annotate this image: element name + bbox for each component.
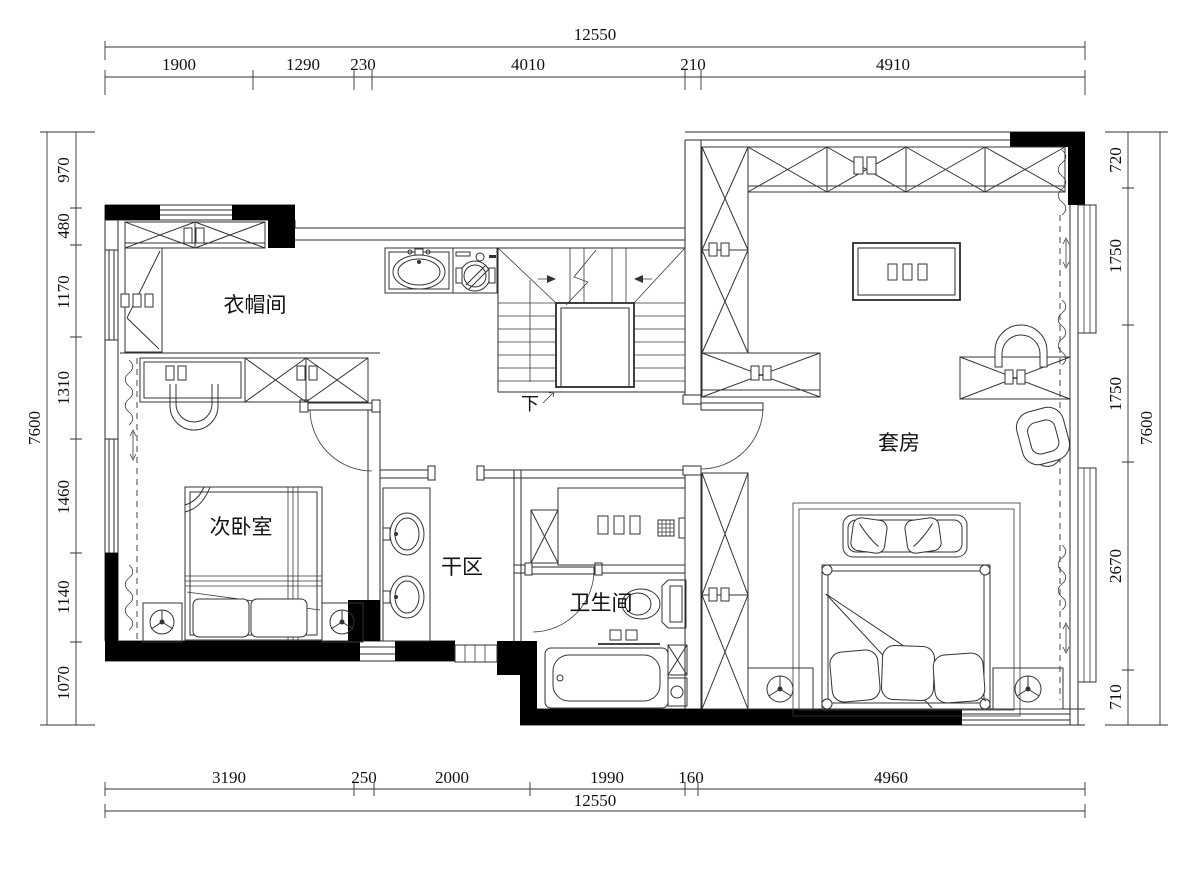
- stairs-down-label: 下: [521, 394, 539, 414]
- dim-bottom-seg-1: 250: [351, 768, 377, 787]
- suite-nightstand-left: [748, 668, 813, 709]
- dim-right-seg-0: 720: [1106, 147, 1125, 173]
- room-label-second-bedroom: 次卧室: [210, 516, 273, 539]
- bathtub: [545, 648, 668, 708]
- room-label-cloakroom: 衣帽间: [224, 294, 287, 317]
- staircase: 下: [498, 248, 685, 414]
- vanity-double-sinks: [383, 488, 430, 641]
- suite-bed: [822, 565, 990, 709]
- suite-dresser-west: [702, 353, 820, 397]
- bedroom-bed: [185, 487, 322, 640]
- door-suite: [683, 395, 763, 475]
- dim-left-seg-1: 480: [54, 213, 73, 239]
- dim-left-seg-2: 1170: [54, 275, 73, 308]
- room-label-dry-area: 干区: [441, 556, 483, 579]
- dim-left-seg-3: 1310: [54, 371, 73, 405]
- dim-right-total: 7600: [1137, 411, 1156, 445]
- bath-accessories: [598, 630, 687, 706]
- suite-desk: [960, 325, 1070, 399]
- room-label-bathroom: 卫生间: [570, 592, 633, 615]
- dim-top-total: 12550: [574, 25, 617, 44]
- bedroom-wardrobe: [245, 358, 368, 402]
- bay-windows-right: [1078, 205, 1096, 682]
- suite-wardrobe-top: [748, 147, 1065, 192]
- hall-sink-cabinet: [385, 248, 453, 293]
- suite-bench: [843, 515, 967, 557]
- walls: [105, 132, 1085, 725]
- dim-bottom-seg-0: 3190: [212, 768, 246, 787]
- dim-left-total: 7600: [25, 411, 44, 445]
- dim-left-seg-0: 970: [54, 157, 73, 183]
- dim-right-seg-1: 1750: [1106, 239, 1125, 273]
- suite-chair: [1013, 404, 1074, 472]
- room-label-suite: 套房: [878, 432, 920, 455]
- dim-top-seg-3: 4010: [511, 55, 545, 74]
- dim-top-seg-2: 230: [350, 55, 376, 74]
- dim-bottom-total: 12550: [574, 791, 617, 810]
- dim-left-seg-5: 1140: [54, 580, 73, 613]
- opening-dry-area: [428, 466, 484, 480]
- washing-machine: [453, 248, 497, 293]
- dim-right-seg-4: 710: [1106, 684, 1125, 710]
- cloakroom-closet: [121, 248, 162, 352]
- dimension-bottom: 3190 250 2000 1990 160 4960 12550: [105, 768, 1085, 818]
- dim-top-seg-0: 1900: [162, 55, 196, 74]
- dimension-left: 970 480 1170 1310 1460 1140 1070 7600: [25, 132, 95, 725]
- dim-top-seg-4: 210: [680, 55, 706, 74]
- suite-island: [853, 243, 960, 300]
- shower-area: [558, 488, 685, 565]
- suite-nightstand-right: [993, 668, 1063, 709]
- dim-bottom-seg-4: 160: [678, 768, 704, 787]
- dim-right-seg-2: 1750: [1106, 377, 1125, 411]
- floor-plan-drawing: 12550 1900 1290 230 4010 210 4910 3190 2…: [0, 0, 1200, 874]
- dressing-table: [140, 358, 245, 430]
- dim-right-seg-3: 2670: [1106, 549, 1125, 583]
- dim-top-seg-1: 1290: [286, 55, 320, 74]
- dim-bottom-seg-2: 2000: [435, 768, 469, 787]
- dim-left-seg-6: 1070: [54, 666, 73, 700]
- threshold-strips: [455, 645, 497, 662]
- suite-wardrobe-left: [702, 147, 748, 353]
- dim-bottom-seg-3: 1990: [590, 768, 624, 787]
- bedroom-nightstand-left: [143, 603, 182, 642]
- dim-top-seg-5: 4910: [876, 55, 910, 74]
- dimension-right: 720 1750 1750 2670 710 7600: [1105, 132, 1168, 725]
- dimension-top: 12550 1900 1290 230 4010 210 4910: [105, 25, 1085, 95]
- duct-shaft: [531, 510, 558, 563]
- floor-plan-canvas: 12550 1900 1290 230 4010 210 4910 3190 2…: [0, 0, 1200, 874]
- dim-left-seg-4: 1460: [54, 480, 73, 514]
- cloakroom-wardrobe: [125, 222, 265, 248]
- dim-bottom-seg-5: 4960: [874, 768, 908, 787]
- suite-cabinet-south: [702, 473, 748, 709]
